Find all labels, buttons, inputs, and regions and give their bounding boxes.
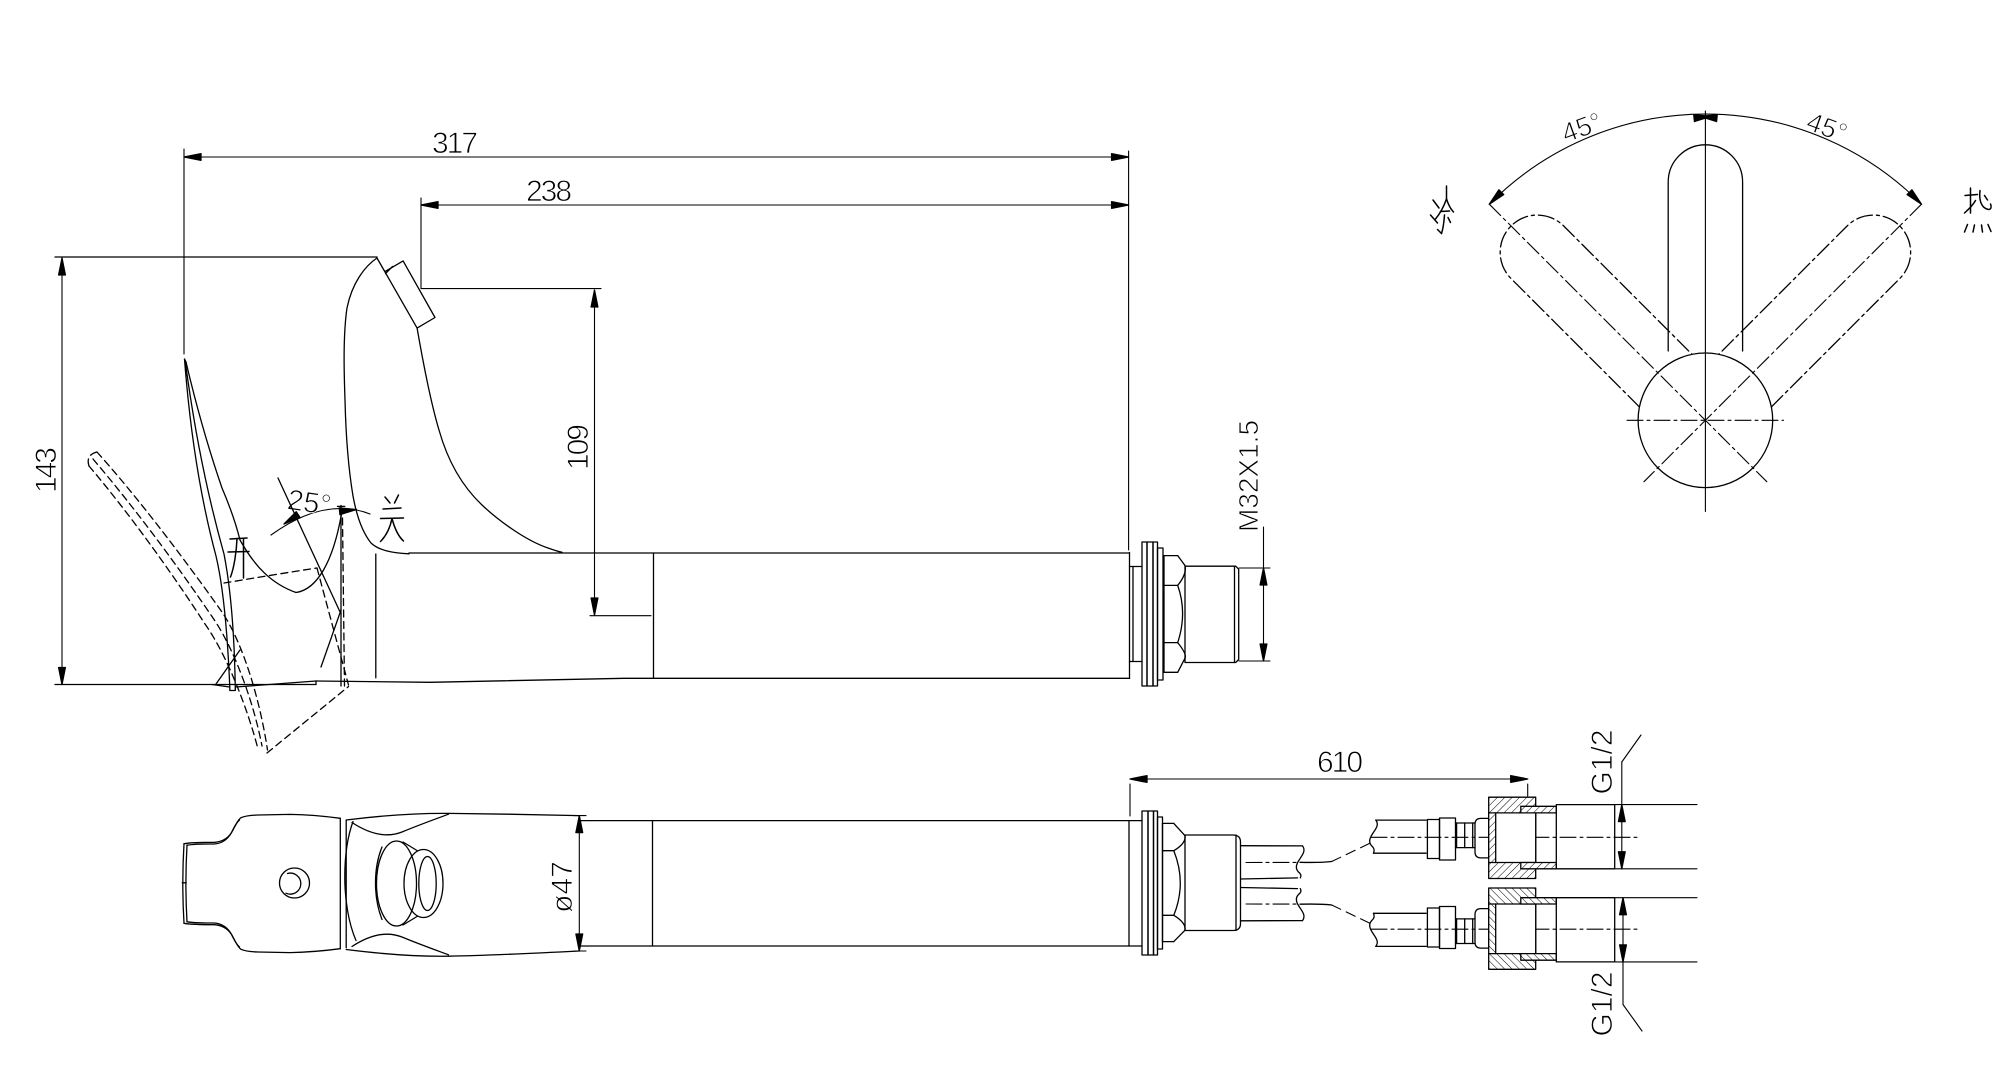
svg-text:109: 109 (562, 424, 595, 470)
svg-text:G1/2: G1/2 (1586, 971, 1619, 1036)
svg-text:238: 238 (526, 175, 572, 208)
svg-text:25°: 25° (285, 484, 333, 522)
svg-text:G1/2: G1/2 (1586, 729, 1619, 794)
svg-text:M32X1.5: M32X1.5 (1233, 420, 1264, 532)
svg-text:ø47: ø47 (546, 861, 579, 913)
svg-text:143: 143 (30, 447, 63, 493)
svg-text:610: 610 (1317, 746, 1363, 779)
svg-text:317: 317 (432, 127, 478, 160)
